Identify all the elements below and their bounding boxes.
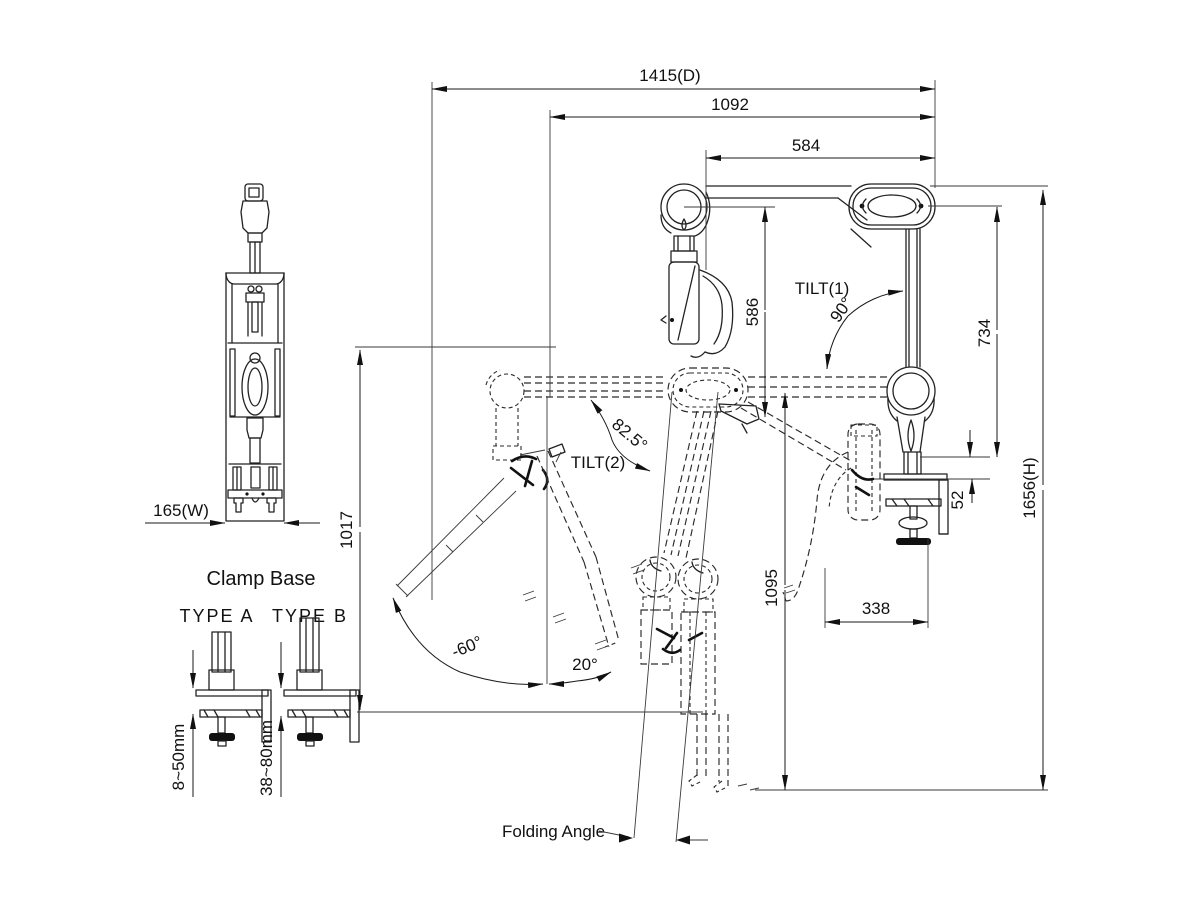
clamp-base-title: Clamp Base [207,568,316,590]
dashed-arm-horizontal [486,370,889,460]
dashed-folded-arm-lower [636,557,759,792]
tilt-down-label: -60° [449,632,485,661]
dim-586-label: 586 [743,298,762,326]
dim-1092-label: 1092 [711,95,749,114]
tilt-up-label: 20° [572,655,598,674]
tilt1-callout: TILT(1) 90° [795,279,903,369]
dim-584-label: 584 [792,136,820,155]
dimension-1095: 1095 [762,393,785,790]
dashed-fold-links [664,402,851,558]
technical-drawing: 165(W) Clamp Base TYPE A TYPE B 8~50mm [0,0,1200,900]
front-view-folded-arm [226,184,284,521]
folding-leader-lines [634,392,718,842]
dim-1017-label: 1017 [337,511,356,549]
arm-head-joint [661,184,733,357]
tilt-down-blade [396,478,516,597]
main-side-view [396,184,958,842]
dimension-338: 338 [825,599,928,622]
dashed-center-oval [668,368,759,433]
dim-1415-label: 1415(D) [639,66,700,85]
type-b-range-label: 38~80mm [257,720,276,796]
tilt2-angle: 82.5° [608,415,651,455]
desk-clamp [864,474,958,545]
riser-pole [906,229,920,367]
tilt-up-blade [523,451,644,650]
tilt1-angle: 90° [826,294,856,326]
dim-338-label: 338 [862,599,890,618]
tilt2-label: TILT(2) [571,453,625,472]
clamp-type-b: 38~80mm [257,618,359,797]
type-a-range-label: 8~50mm [169,724,188,791]
dimension-1017: 1017 [337,350,360,710]
dimension-1415: 1415(D) [432,66,935,89]
dim-1656-label: 1656(H) [1020,457,1039,518]
dim-1095-label: 1095 [762,569,781,607]
type-b-label: TYPE B [272,606,348,626]
type-a-label: TYPE A [179,606,254,626]
clamp-base-section: Clamp Base TYPE A TYPE B 8~50mm [169,568,359,797]
oval-mount-plate [849,184,935,229]
dimension-584: 584 [706,136,935,158]
dimension-52: 52 [948,430,972,509]
tilt-range-callout: -60° 20° [393,598,611,685]
dimension-1092: 1092 [550,95,935,117]
corner-joint [887,367,935,474]
extension-lines [355,80,1048,790]
dim-52-label: 52 [948,491,967,510]
dim-width-165: 165(W) [145,501,320,523]
top-arm-tube [706,186,871,247]
clamp-type-a: 8~50mm [169,632,271,797]
dim-165-label: 165(W) [153,501,209,520]
dashed-bracket-right [783,424,880,601]
folding-angle-label: Folding Angle [502,822,605,841]
dimension-586: 586 [743,207,765,417]
tilt2-callout: 82.5° TILT(2) [571,400,651,472]
dimension-734: 734 [975,207,997,457]
dim-734-label: 734 [975,319,994,347]
dimension-1656: 1656(H) [1020,190,1043,790]
monitor-bracket-cluster [511,444,565,489]
blueprint-canvas: 165(W) Clamp Base TYPE A TYPE B 8~50mm [0,0,1200,900]
